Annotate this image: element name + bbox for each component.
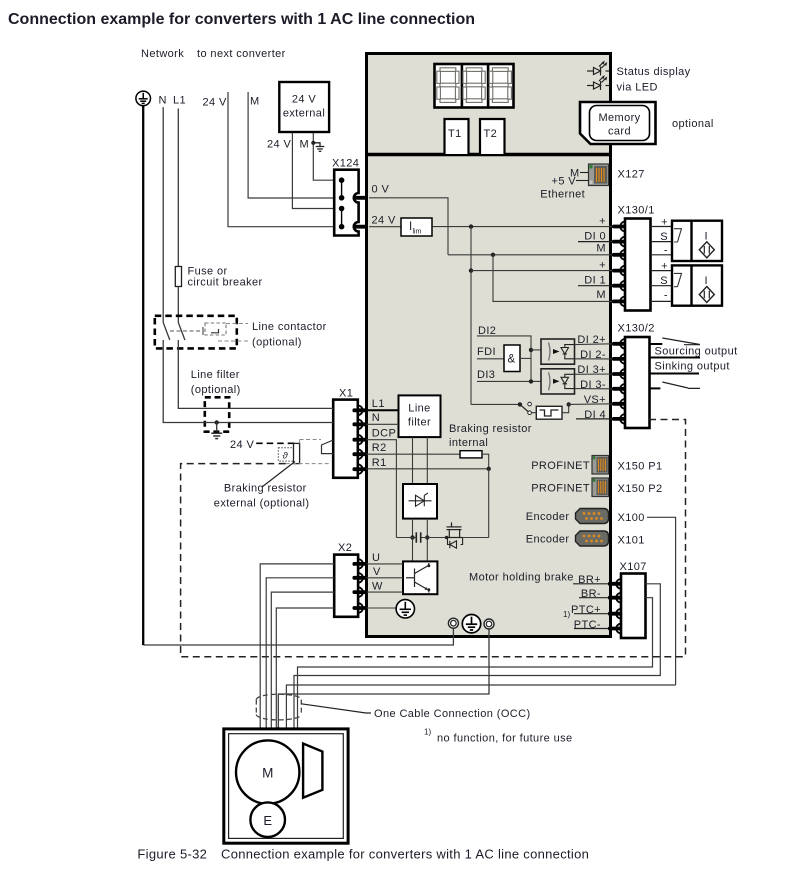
svg-text:to next converter: to next converter [197, 48, 286, 60]
svg-text:1): 1) [563, 610, 570, 619]
svg-text:Braking resistor: Braking resistor [449, 423, 532, 435]
svg-text:+: + [599, 260, 606, 272]
svg-text:PROFINET: PROFINET [531, 460, 590, 472]
svg-text:I: I [705, 231, 708, 243]
svg-text:Line contactor: Line contactor [252, 321, 327, 333]
svg-text:DI2: DI2 [478, 325, 496, 337]
svg-text:X150 P2: X150 P2 [618, 483, 663, 495]
svg-text:V: V [373, 566, 381, 578]
svg-text:PTC-: PTC- [574, 619, 601, 631]
svg-text:optional: optional [672, 118, 714, 130]
svg-text:Memory: Memory [598, 112, 640, 124]
svg-text:FDI: FDI [477, 346, 496, 358]
svg-text:ϑ: ϑ [283, 451, 289, 462]
svg-text:+5 V: +5 V [552, 176, 577, 188]
svg-text:X100: X100 [618, 512, 645, 524]
svg-text:U: U [372, 552, 380, 564]
svg-text:(optional): (optional) [252, 337, 302, 349]
svg-text:M: M [596, 289, 606, 301]
svg-text:DI 2+: DI 2+ [577, 334, 606, 346]
svg-text:X124: X124 [332, 158, 359, 170]
svg-text:24 V: 24 V [267, 139, 291, 151]
svg-text:S: S [660, 275, 668, 287]
svg-text:24 V: 24 V [230, 439, 254, 451]
svg-text:I: I [705, 275, 708, 287]
svg-text:Sinking output: Sinking output [655, 361, 730, 373]
svg-text:filter: filter [408, 417, 431, 429]
svg-text:circuit breaker: circuit breaker [188, 277, 263, 289]
svg-text:Connection example for convert: Connection example for converters with 1… [221, 847, 589, 862]
svg-text:N: N [159, 95, 167, 107]
svg-text:0 V: 0 V [372, 184, 390, 196]
svg-text:Ethernet: Ethernet [540, 189, 585, 201]
svg-text:Line filter: Line filter [191, 369, 240, 381]
svg-text:-: - [664, 290, 668, 302]
svg-text:DI 1: DI 1 [584, 275, 606, 287]
svg-text:internal: internal [449, 437, 488, 449]
svg-text:Connection example for convert: Connection example for converters with 1… [8, 11, 475, 28]
svg-text:X2: X2 [338, 542, 352, 554]
svg-text:Motor holding brake: Motor holding brake [469, 572, 574, 584]
svg-text:24 V: 24 V [292, 94, 316, 106]
svg-text:card: card [608, 126, 631, 138]
svg-text:X107: X107 [620, 561, 647, 573]
svg-text:T2: T2 [484, 128, 498, 140]
svg-text:+: + [661, 261, 668, 273]
svg-text:W: W [372, 581, 383, 593]
svg-text:Encoder: Encoder [526, 511, 570, 523]
svg-text:no function, for future use: no function, for future use [437, 733, 573, 745]
svg-text:S: S [660, 231, 668, 243]
svg-text:Braking resistor: Braking resistor [224, 483, 307, 495]
svg-text:24 V: 24 V [372, 215, 396, 227]
svg-text:One Cable Connection (OCC): One Cable Connection (OCC) [374, 708, 531, 720]
svg-text:DI 2-: DI 2- [580, 349, 606, 361]
svg-text:PROFINET: PROFINET [531, 483, 590, 495]
svg-text:M: M [596, 243, 606, 255]
svg-text:R1: R1 [372, 457, 387, 469]
svg-text:lim: lim [413, 229, 422, 236]
svg-text:&: & [508, 354, 516, 366]
svg-text:X1: X1 [339, 388, 353, 400]
svg-text:X130/2: X130/2 [618, 323, 655, 335]
svg-text:DI 3-: DI 3- [580, 379, 606, 391]
svg-text:1): 1) [424, 728, 431, 737]
svg-text:Line: Line [408, 403, 430, 415]
svg-text:(optional): (optional) [191, 384, 241, 396]
svg-text:X130/1: X130/1 [618, 205, 655, 217]
svg-text:M: M [300, 139, 310, 151]
svg-text:24 V: 24 V [203, 97, 227, 109]
svg-text:external: external [283, 108, 325, 120]
svg-text:N: N [372, 412, 380, 424]
svg-text:L1: L1 [173, 95, 186, 107]
svg-text:X101: X101 [618, 535, 645, 547]
svg-text:DI3: DI3 [477, 369, 495, 381]
svg-text:via LED: via LED [617, 82, 658, 94]
svg-text:M: M [250, 96, 260, 108]
svg-text:Encoder: Encoder [526, 534, 570, 546]
svg-text:Network: Network [141, 48, 184, 60]
svg-text:+: + [599, 216, 606, 228]
svg-text:Status display: Status display [617, 66, 691, 78]
svg-text:X127: X127 [618, 169, 645, 181]
svg-text:M: M [262, 766, 273, 781]
svg-text:Figure 5-32: Figure 5-32 [137, 847, 207, 862]
svg-text:L1: L1 [372, 398, 385, 410]
svg-text:DCP: DCP [372, 428, 396, 440]
svg-text:-: - [664, 245, 668, 257]
svg-text:+: + [661, 217, 668, 229]
svg-text:E: E [263, 813, 272, 828]
svg-text:T1: T1 [448, 128, 462, 140]
svg-text:DI 0: DI 0 [584, 231, 606, 243]
svg-text:R2: R2 [372, 442, 387, 454]
svg-text:DI 3+: DI 3+ [577, 364, 606, 376]
svg-text:X150 P1: X150 P1 [618, 461, 663, 473]
svg-text:external (optional): external (optional) [214, 498, 310, 510]
svg-text:Sourcing output: Sourcing output [655, 346, 738, 358]
